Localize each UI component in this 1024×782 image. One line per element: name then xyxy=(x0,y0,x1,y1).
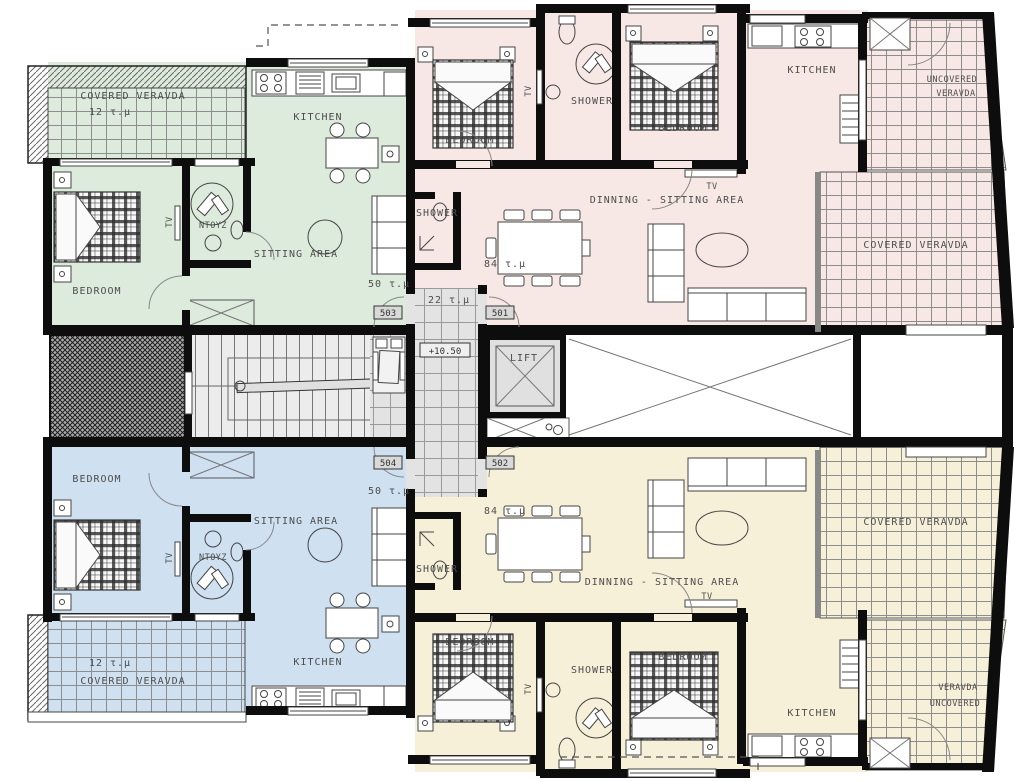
planter xyxy=(50,335,185,438)
tv-label: TV xyxy=(524,85,534,96)
kitchen-label: KITCHEN xyxy=(293,112,342,123)
area-label: 50 τ.μ xyxy=(368,279,410,290)
area-label: 84 τ.μ xyxy=(484,506,526,517)
shower-label: ΝΤΟΥΖ xyxy=(199,221,227,231)
badge-502-label: 502 xyxy=(492,459,508,469)
sitting-label: SITTING AREA xyxy=(254,249,338,260)
shower1-label: SHOWER xyxy=(416,564,458,575)
corridor xyxy=(415,288,478,497)
wheelchair-icon xyxy=(373,337,405,393)
shower2-label: SHOWER xyxy=(416,208,458,219)
tv2-label: TV xyxy=(524,683,534,694)
tv-set xyxy=(175,206,180,240)
veranda-area-label: 12 τ.μ xyxy=(89,658,131,669)
area-label: 50 τ.μ xyxy=(368,486,410,497)
floor-plan: 503 501 504 502 22 τ.μ +10.50 LIFT COVER… xyxy=(0,0,1024,782)
floor-plan-drawing: 503 501 504 502 22 τ.μ +10.50 LIFT COVER… xyxy=(0,0,1024,782)
covered-veranda-label: COVERED VERAVDA xyxy=(863,517,968,528)
area-label: 84 τ.μ xyxy=(484,259,526,270)
tv-set xyxy=(537,678,542,712)
badge-501-label: 501 xyxy=(492,309,508,319)
sitting-label: SITTING AREA xyxy=(254,516,338,527)
tv-set xyxy=(537,70,542,104)
veranda-label: COVERED VERAVDA xyxy=(80,676,185,687)
uncovered-veranda-label-1: VERAVDA xyxy=(938,683,977,693)
bedroom1-label: BEDROOM xyxy=(445,135,494,146)
uncovered-veranda-label-1: UNCOVERED xyxy=(927,75,978,85)
living-label: DINNING - SITTING AREA xyxy=(585,577,739,588)
tv-label: TV xyxy=(165,216,175,227)
bedroom2-label: BEDROOM xyxy=(658,123,707,134)
covered-veranda-label: COVERED VERAVDA xyxy=(863,240,968,251)
shower1-label: SHOWER xyxy=(571,96,613,107)
tv2-label: TV xyxy=(706,182,717,192)
bedroom2-label: BEDROOM xyxy=(658,652,707,663)
veranda-label: COVERED VERAVDA xyxy=(80,91,185,102)
kitchen-label: KITCHEN xyxy=(787,65,836,76)
badge-504-label: 504 xyxy=(380,459,396,469)
uncovered-veranda-label-2: UNCOVERED xyxy=(930,699,981,709)
bedroom-label: BEDROOM xyxy=(72,286,121,297)
kitchen-label: KITCHEN xyxy=(293,657,342,668)
light-shaft xyxy=(567,337,853,437)
living-label: DINNING - SITTING AREA xyxy=(590,195,744,206)
corridor-area-label: 22 τ.μ xyxy=(428,295,470,306)
level-label: +10.50 xyxy=(429,347,462,357)
badge-503-label: 503 xyxy=(380,309,396,319)
lift-label: LIFT xyxy=(510,353,538,364)
shower2-label: SHOWER xyxy=(571,665,613,676)
uncovered-veranda-label-2: VERAVDA xyxy=(936,89,975,99)
tv-label: TV xyxy=(165,552,175,563)
tv1-label: TV xyxy=(701,592,712,602)
kitchen-label: KITCHEN xyxy=(787,708,836,719)
lift xyxy=(487,337,563,415)
veranda-area-label: 12 τ.μ xyxy=(89,107,131,118)
shower-label: ΝΤΟΥΖ xyxy=(199,553,227,563)
tv-set xyxy=(175,542,180,576)
bedroom1-label: BEDROOM xyxy=(445,637,494,648)
bedroom-label: BEDROOM xyxy=(72,474,121,485)
